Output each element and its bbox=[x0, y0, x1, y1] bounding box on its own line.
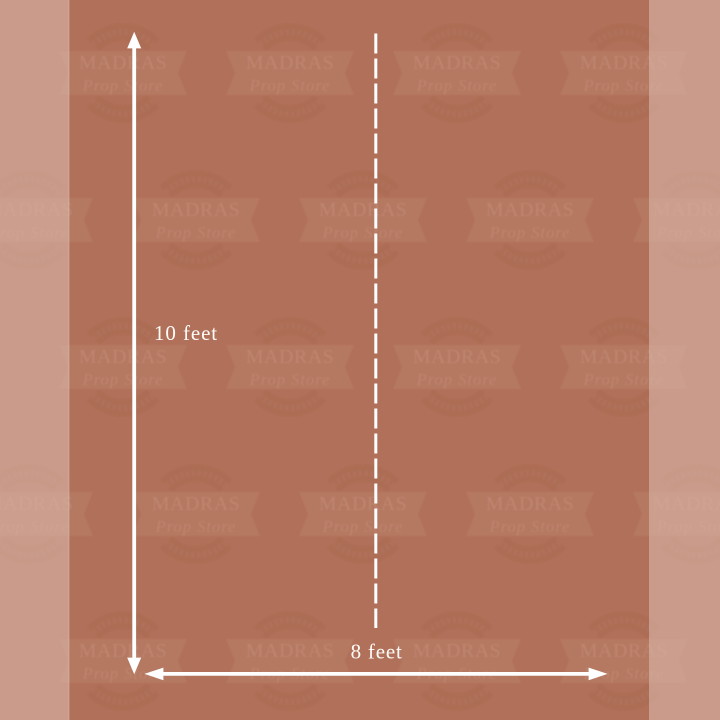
svg-text:10 feet: 10 feet bbox=[154, 321, 218, 345]
svg-text:8 feet: 8 feet bbox=[351, 639, 403, 663]
